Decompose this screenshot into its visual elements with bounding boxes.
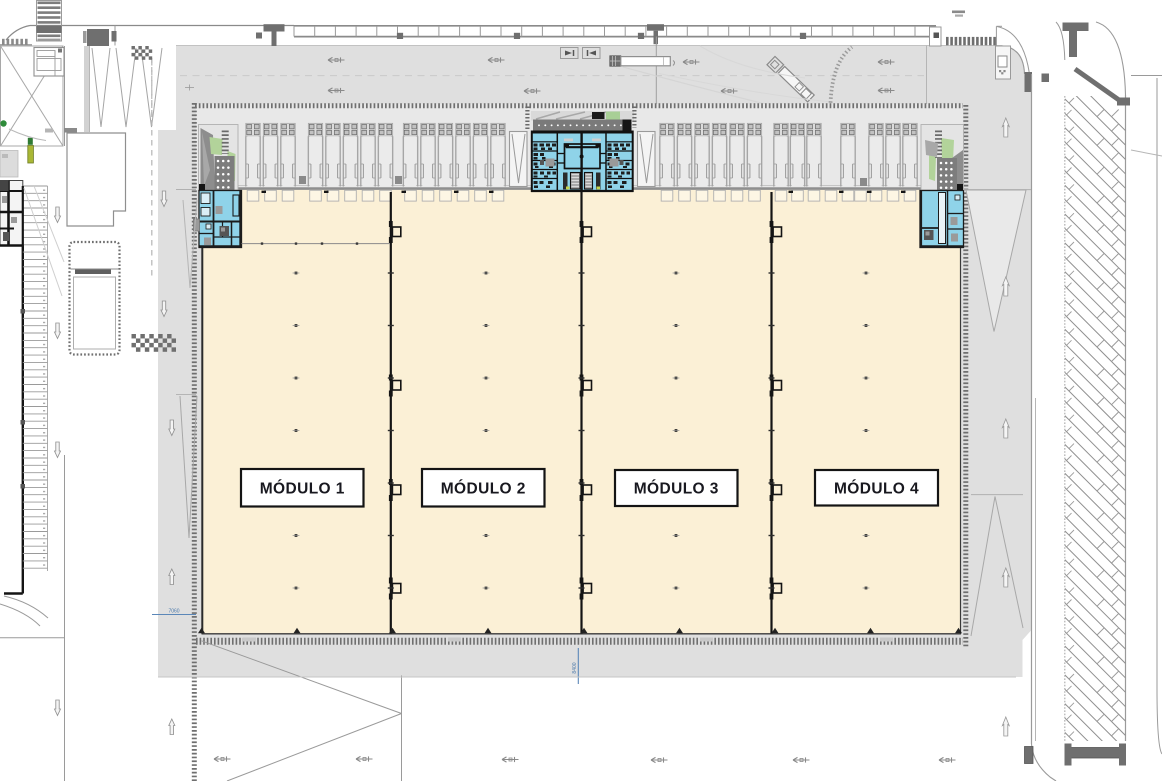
svg-text:8400: 8400 <box>572 662 578 673</box>
svg-text:MÓDULO 2: MÓDULO 2 <box>441 479 526 497</box>
svg-text:MÓDULO 1: MÓDULO 1 <box>260 479 345 497</box>
svg-text:7060: 7060 <box>168 609 179 615</box>
svg-text:MÓDULO 3: MÓDULO 3 <box>634 480 719 498</box>
svg-text:MÓDULO 4: MÓDULO 4 <box>834 479 919 497</box>
